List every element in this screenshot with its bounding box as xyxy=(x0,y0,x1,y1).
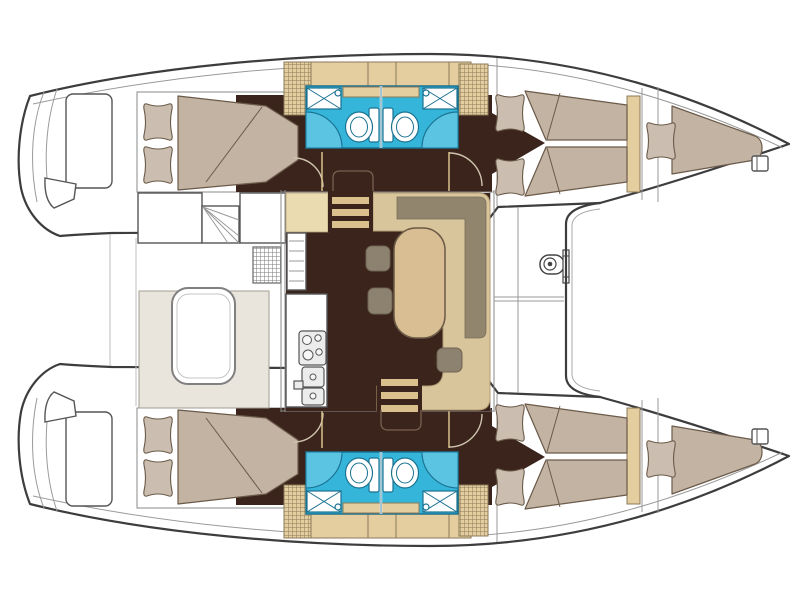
companionway-steps-starboard xyxy=(328,160,373,232)
cockpit-locker xyxy=(138,193,202,243)
locker-louvres xyxy=(459,64,488,115)
catamaran-floor-plan xyxy=(0,0,800,600)
pillow xyxy=(496,95,524,131)
bathroom xyxy=(284,62,488,148)
pillow xyxy=(144,147,172,183)
transom-platform xyxy=(66,94,112,188)
mast-beam-lines xyxy=(494,297,564,301)
cockpit-locker xyxy=(240,193,286,243)
cockpit-table xyxy=(172,288,235,384)
stool xyxy=(366,246,390,271)
anchor-windlass xyxy=(540,250,569,283)
pillow xyxy=(496,159,524,195)
stool xyxy=(437,348,462,372)
salon xyxy=(281,160,494,432)
bow-bulkhead xyxy=(627,96,640,192)
washbasin xyxy=(423,88,457,109)
deck-grate xyxy=(253,247,281,283)
galley-stove xyxy=(299,331,326,365)
foredeck xyxy=(494,203,600,397)
pillow xyxy=(647,123,675,159)
chart-counter xyxy=(286,193,328,232)
stool xyxy=(368,288,392,314)
companionway-steps-port xyxy=(377,368,422,432)
trampoline-edge xyxy=(566,203,600,397)
cockpit-steps xyxy=(202,206,239,243)
salon-table xyxy=(394,228,445,338)
overhead-cabinets xyxy=(289,62,471,88)
trampoline-inner-line xyxy=(572,209,600,391)
pillow xyxy=(144,104,172,140)
washbasin xyxy=(307,88,341,109)
bow-fitting xyxy=(752,156,768,171)
galley-sink xyxy=(302,367,324,387)
floor-plan-canvas xyxy=(0,0,800,600)
galley-cabinet xyxy=(287,233,306,290)
